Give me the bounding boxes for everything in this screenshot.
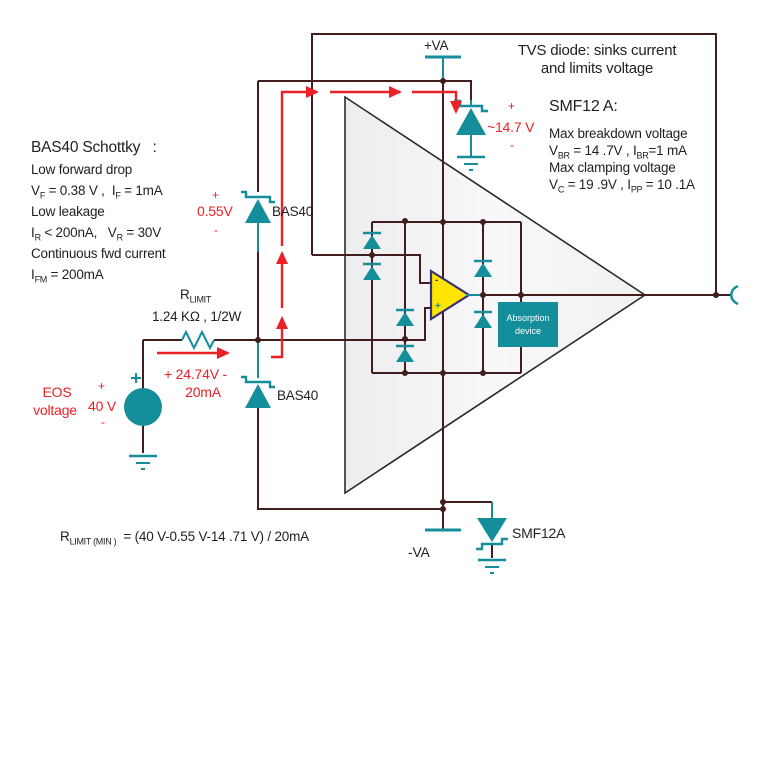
source-minus-label: - [101,416,105,429]
bas40-lower-label: BAS40 [277,389,318,404]
smf-block-title: SMF12 A: [549,98,618,116]
absorption-line1: Absorption [506,312,549,324]
bas40-upper-label: BAS40 [272,205,313,220]
tvs-clamp-label: ~14.7 V [487,120,534,135]
bas40-block-line5: Continuous fwd current [31,247,165,262]
eos-label-line2: voltage [33,403,77,418]
source-value-label: 40 V [88,399,116,414]
schematic-graphics [0,0,768,768]
smf-block-line1: Max breakdown voltage [549,127,687,142]
smf-block-line4: VC = 19 .9V , IPP = 10 .1A [549,178,695,196]
bas40-block-line2: VF = 0.38 V , IF = 1mA [31,184,163,202]
bas40-block-line4: IR < 200nA, VR = 30V [31,226,161,244]
flow-arrow-down-tvs [412,92,456,112]
tvs-plus-label: + [508,100,515,113]
bas40-block-title: BAS40 Schottky : [31,139,157,156]
ground-icon-tvs-top [457,157,485,170]
tvs-note-line1: TVS diode: sinks current [518,43,677,60]
opamp-minus-sign: - [435,275,438,286]
eos-protection-schematic: BAS40 Schottky : Low forward drop VF = 0… [0,0,768,768]
ground-icon-smf12a [478,560,506,573]
resistor-icon [182,332,214,348]
bas40-block-line3: Low leakage [31,205,105,220]
bas40-plus-label: + [212,189,219,202]
eos-label-line1: EOS [43,385,72,400]
resistor-name-label: RLIMIT [180,288,211,306]
plus-va-label: +VA [424,39,448,54]
smf-block-line2: VBR = 14 .7V , IBR=1 mA [549,144,687,162]
source-plus-label: + [98,380,105,393]
inner-top-rail-wire [258,81,471,100]
bas40-block-line1: Low forward drop [31,163,132,178]
bas40-upper-diode-icon [241,192,275,223]
bas40-block-line6: IFM = 200mA [31,268,104,286]
bas40-lower-diode-icon [241,377,275,408]
source-plus-icon [131,373,141,383]
output-connector-icon [731,286,738,304]
tvs-top-diode-icon [454,101,488,135]
rlimit-formula: RLIMIT (MIN ) = (40 V-0.55 V-14 .71 V) /… [60,530,309,548]
smf-block-line3: Max clamping voltage [549,161,676,176]
bas40-drop-label: 0.55V [197,204,233,219]
current-label: 20mA [185,385,221,400]
bas40-minus-label: - [214,224,218,237]
smf12a-label: SMF12A [512,526,565,541]
absorption-line2: device [515,325,541,337]
ground-icon-eos [129,456,157,469]
smf12a-diode-icon [476,518,508,549]
tvs-minus-label: - [510,139,514,152]
tvs-note-line2: and limits voltage [541,61,653,78]
absorption-device-label: Absorption device [498,302,558,347]
resistor-value-label: 1.24 KΩ , 1/2W [152,310,241,325]
opamp-plus-sign: + [435,301,441,312]
resistor-drop-label: + 24.74V - [164,367,227,382]
eos-source-icon [124,388,162,426]
minus-va-label: -VA [408,545,430,560]
flow-arrow-up-1 [271,318,282,357]
